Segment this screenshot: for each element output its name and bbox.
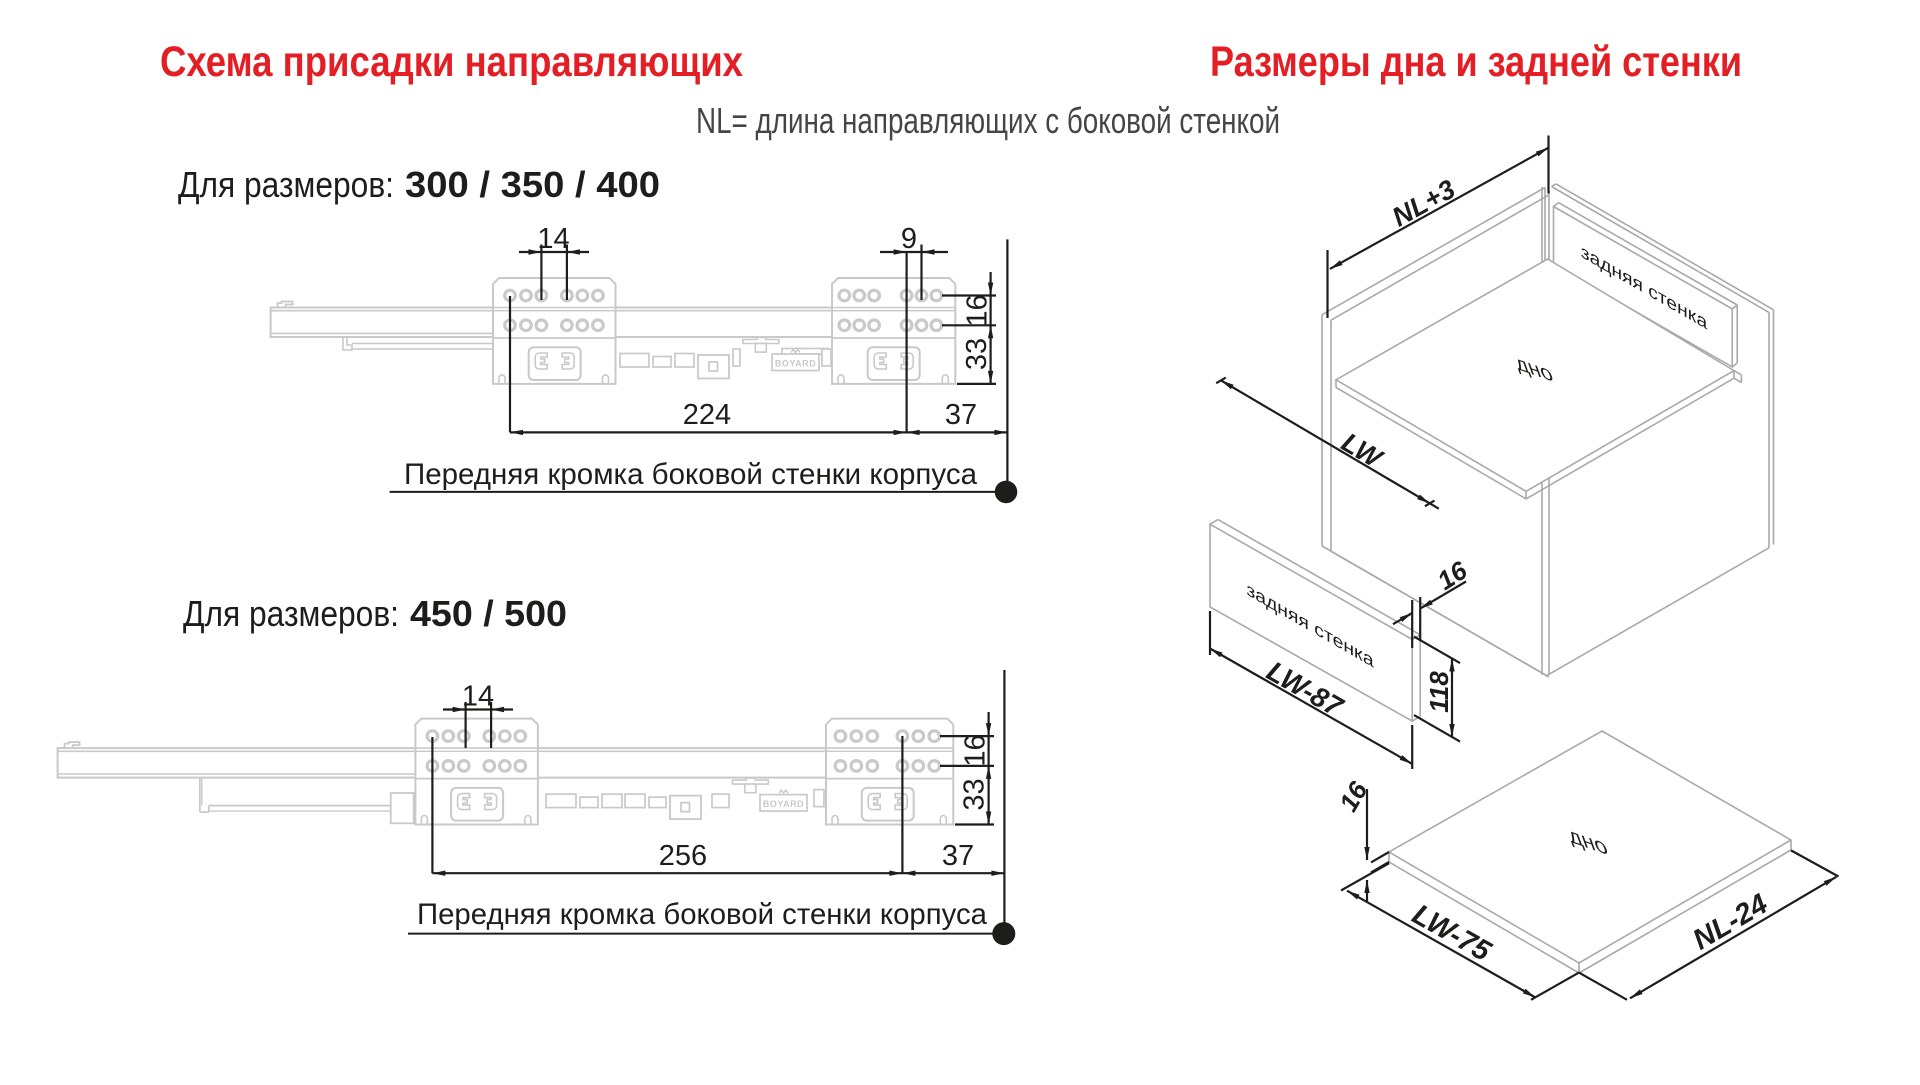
svg-text:Для размеров:: Для размеров: (183, 593, 399, 634)
svg-text:Передняя кромка боковой стенки: Передняя кромка боковой стенки корпуса (417, 898, 987, 931)
svg-text:16: 16 (962, 294, 994, 326)
svg-text:Для размеров:: Для размеров: (178, 164, 394, 205)
svg-text:224: 224 (683, 399, 731, 431)
svg-text:Передняя кромка боковой стенки: Передняя кромка боковой стенки корпуса (404, 458, 977, 491)
svg-text:BOYARD: BOYARD (775, 359, 816, 369)
svg-text:33: 33 (961, 338, 993, 370)
svg-text:300 / 350 / 400: 300 / 350 / 400 (405, 164, 660, 205)
svg-text:9: 9 (901, 223, 917, 255)
svg-text:Схема присадки направляющих: Схема присадки направляющих (160, 38, 743, 86)
svg-text:37: 37 (945, 399, 977, 431)
svg-text:14: 14 (462, 681, 494, 713)
svg-text:118: 118 (1424, 671, 1454, 713)
svg-text:Размеры дна и задней стенки: Размеры дна и задней стенки (1210, 38, 1742, 86)
svg-text:16: 16 (960, 734, 992, 766)
svg-text:37: 37 (942, 840, 974, 872)
svg-text:256: 256 (659, 840, 707, 872)
svg-text:NL= длина направляющих с боков: NL= длина направляющих с боковой стенкой (696, 100, 1280, 141)
svg-text:33: 33 (959, 778, 991, 810)
svg-text:450 / 500: 450 / 500 (410, 593, 567, 634)
svg-text:BOYARD: BOYARD (763, 799, 804, 809)
svg-text:14: 14 (537, 223, 569, 255)
